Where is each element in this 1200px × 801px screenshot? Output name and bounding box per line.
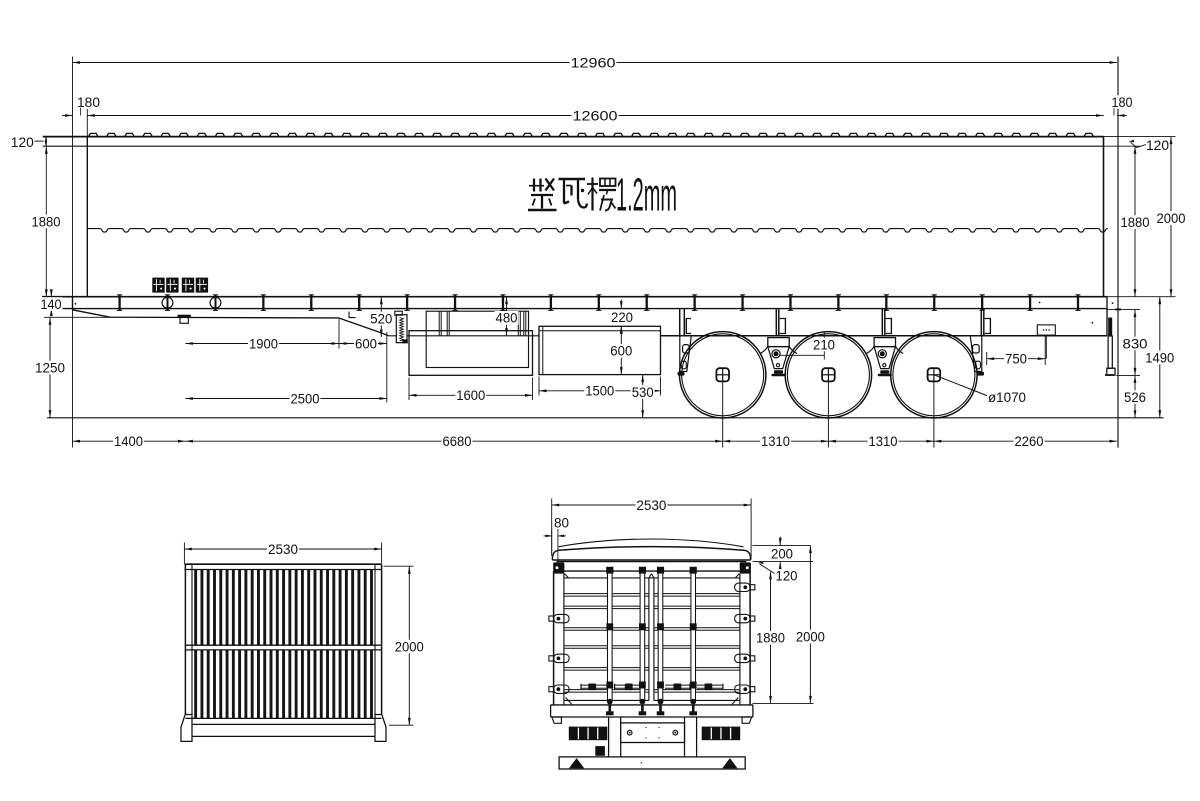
svg-text:1880: 1880 [756,630,785,646]
svg-text:220: 220 [611,309,633,325]
svg-text:80: 80 [554,514,569,530]
svg-text:1310: 1310 [761,433,790,449]
svg-text:830: 830 [1123,335,1148,351]
svg-text:2000: 2000 [796,629,825,645]
svg-text:ø1070: ø1070 [988,389,1026,405]
svg-text:210: 210 [813,336,835,352]
svg-text:1400: 1400 [114,433,143,449]
svg-text:600: 600 [610,343,632,359]
svg-text:140: 140 [41,296,62,312]
svg-text:2500: 2500 [291,390,320,406]
svg-text:12600: 12600 [573,107,618,123]
svg-text:2530: 2530 [268,541,298,557]
svg-text:1600: 1600 [456,387,485,403]
svg-text:530: 530 [632,384,654,400]
svg-text:2530: 2530 [636,497,666,513]
svg-text:12960: 12960 [571,54,616,70]
svg-text:520: 520 [370,310,392,326]
svg-text:120: 120 [11,134,34,150]
svg-text:180: 180 [77,94,100,110]
svg-text:2000: 2000 [1157,210,1186,226]
svg-text:1880: 1880 [1121,214,1150,230]
svg-text:526: 526 [1124,389,1146,405]
svg-text:120: 120 [1146,137,1169,153]
svg-text:2260: 2260 [1015,433,1044,449]
svg-text:1500: 1500 [585,383,614,399]
svg-text:1490: 1490 [1145,349,1174,365]
svg-text:200: 200 [771,545,793,561]
svg-text:180: 180 [1112,94,1133,110]
svg-text:2000: 2000 [395,638,424,654]
svg-text:1310: 1310 [869,433,898,449]
svg-text:750: 750 [1005,351,1027,367]
svg-text:480: 480 [496,310,518,326]
svg-text:6680: 6680 [443,433,472,449]
svg-text:1250: 1250 [35,359,65,375]
svg-text:1.2mm: 1.2mm [616,169,677,221]
svg-text:120: 120 [776,568,798,584]
svg-text:1900: 1900 [249,335,278,351]
svg-text:600: 600 [355,335,377,351]
svg-text:1880: 1880 [32,213,61,229]
